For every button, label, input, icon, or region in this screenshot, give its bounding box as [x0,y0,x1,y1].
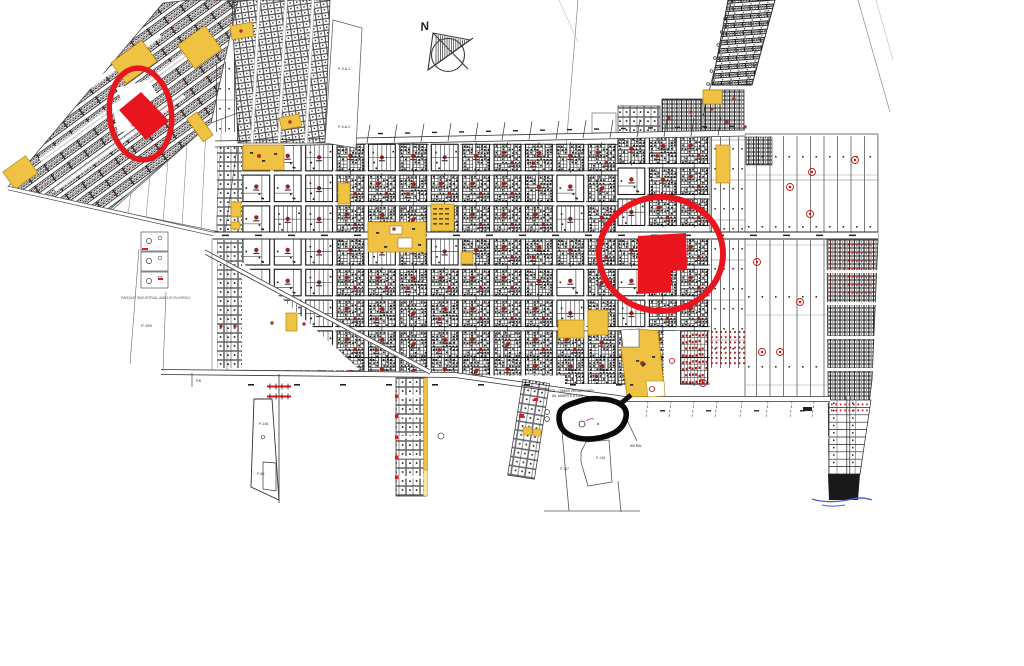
svg-text:P-199: P-199 [141,323,152,328]
svg-text:P-146: P-146 [596,456,605,460]
svg-text:COL. LOMAS VERDES AMPL: COL. LOMAS VERDES AMPL [549,389,595,393]
svg-text:P8: P8 [196,378,202,383]
svg-text:AV.RA: AV.RA [630,443,642,448]
svg-text:P-147: P-147 [560,467,569,471]
svg-text:AV. MUERTE A LOS: AV. MUERTE A LOS [552,394,583,398]
svg-text:PARQUE INDUSTRIAL AMELIO RUVIR: PARQUE INDUSTRIAL AMELIO RUVIRGO [121,296,190,300]
svg-text:P-3-A-2: P-3-A-2 [338,125,350,129]
svg-text:P-3: P-3 [300,37,305,41]
svg-text:P-3-A-1: P-3-A-1 [338,67,350,71]
svg-text:P-86: P-86 [257,472,264,476]
svg-text:P-146: P-146 [259,422,268,426]
